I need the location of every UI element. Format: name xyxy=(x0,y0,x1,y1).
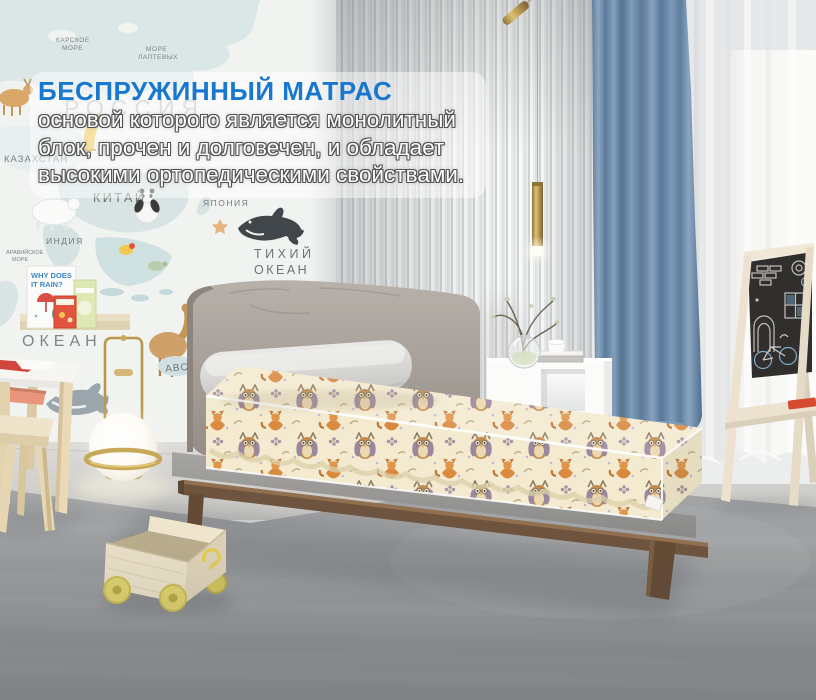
map-label-arabian-sea-1: АРАВИЙСКОЕ xyxy=(6,248,44,256)
map-label-pacific-1: ТИХИЙ xyxy=(254,246,314,261)
product-photo-stage: КАРСКОЕ МОРЕ МОРЕ ЛАПТЕВЫХ РОССИЯ КАЗАХС… xyxy=(0,0,816,700)
floor-vignette xyxy=(0,540,816,700)
promo-text-panel: БЕСПРУЖИННЫЙ МАТРАС основой которого явл… xyxy=(30,72,486,198)
map-label-kara-sea-1: КАРСКОЕ xyxy=(56,37,90,44)
picture-book-red xyxy=(54,296,76,328)
promo-line-1: основой которого является монолитный xyxy=(38,106,472,134)
map-label-india: ИНДИЯ xyxy=(46,236,84,246)
map-label-abc: ABC xyxy=(165,362,189,375)
book-title-line-2: IT RAIN? xyxy=(31,280,63,289)
promo-title: БЕСПРУЖИННЫЙ МАТРАС xyxy=(38,76,472,106)
stacked-books xyxy=(536,351,583,362)
map-label-japan: ЯПОНИЯ xyxy=(203,198,249,208)
white-cup xyxy=(548,339,565,352)
lamp-badge xyxy=(114,369,133,376)
map-label-arabian-sea-2: МОРЕ xyxy=(12,257,29,263)
pendant-lamp-glow-tip xyxy=(533,246,542,256)
book-title-line-1: WHY DOES xyxy=(31,271,72,280)
map-label-laptev-sea-1: МОРЕ xyxy=(146,46,167,53)
map-label-pacific-2: ОКЕАН xyxy=(254,263,309,277)
nightstand-open-shelf xyxy=(541,369,585,411)
lamp-glass-sphere xyxy=(89,413,157,481)
map-label-indian-ocean: ОКЕАН xyxy=(22,333,102,350)
promo-line-2: блок, прочен и долговечен, и обладает xyxy=(38,134,472,162)
picture-book-green xyxy=(74,280,96,328)
map-label-laptev-sea-2: ЛАПТЕВЫХ xyxy=(138,54,178,61)
map-label-kara-sea-2: МОРЕ xyxy=(62,45,83,52)
promo-line-3: высокими ортопедическими свойствами. xyxy=(38,161,472,189)
